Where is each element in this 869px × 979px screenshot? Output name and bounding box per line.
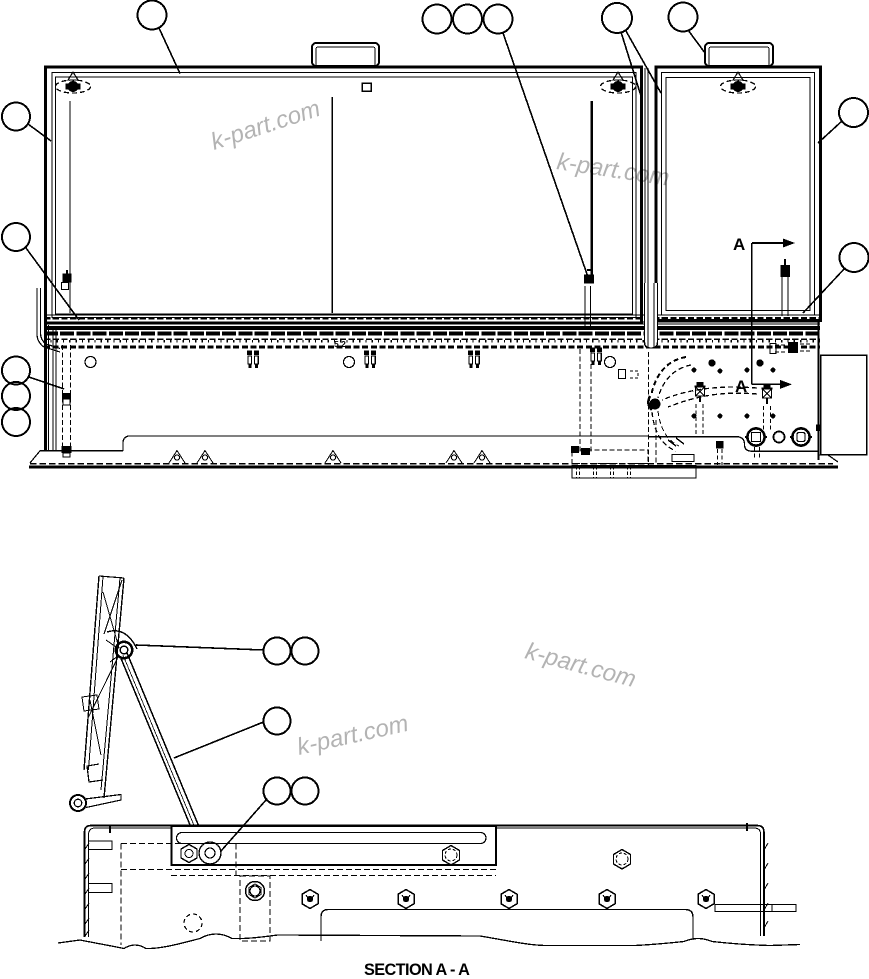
svg-text:A: A: [733, 235, 745, 254]
svg-text:5.2: 5.2: [334, 339, 346, 349]
svg-text:SECTION A - A: SECTION A - A: [364, 961, 470, 979]
svg-text:A: A: [735, 377, 747, 396]
